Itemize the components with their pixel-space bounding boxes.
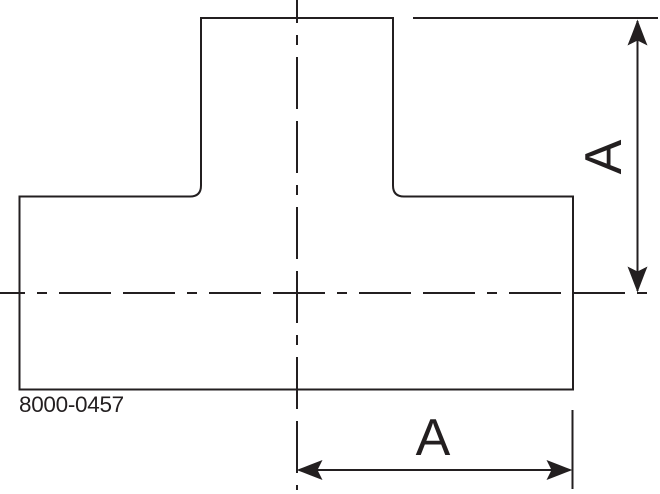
- dimension-a-vertical-label: A: [575, 139, 633, 174]
- part-number-label: 8000-0457: [19, 392, 124, 417]
- tee-drawing-svg: 8000-0457 A A: [0, 0, 660, 494]
- dimension-a-horizontal-label: A: [416, 409, 451, 467]
- technical-drawing-canvas: 8000-0457 A A: [0, 0, 660, 494]
